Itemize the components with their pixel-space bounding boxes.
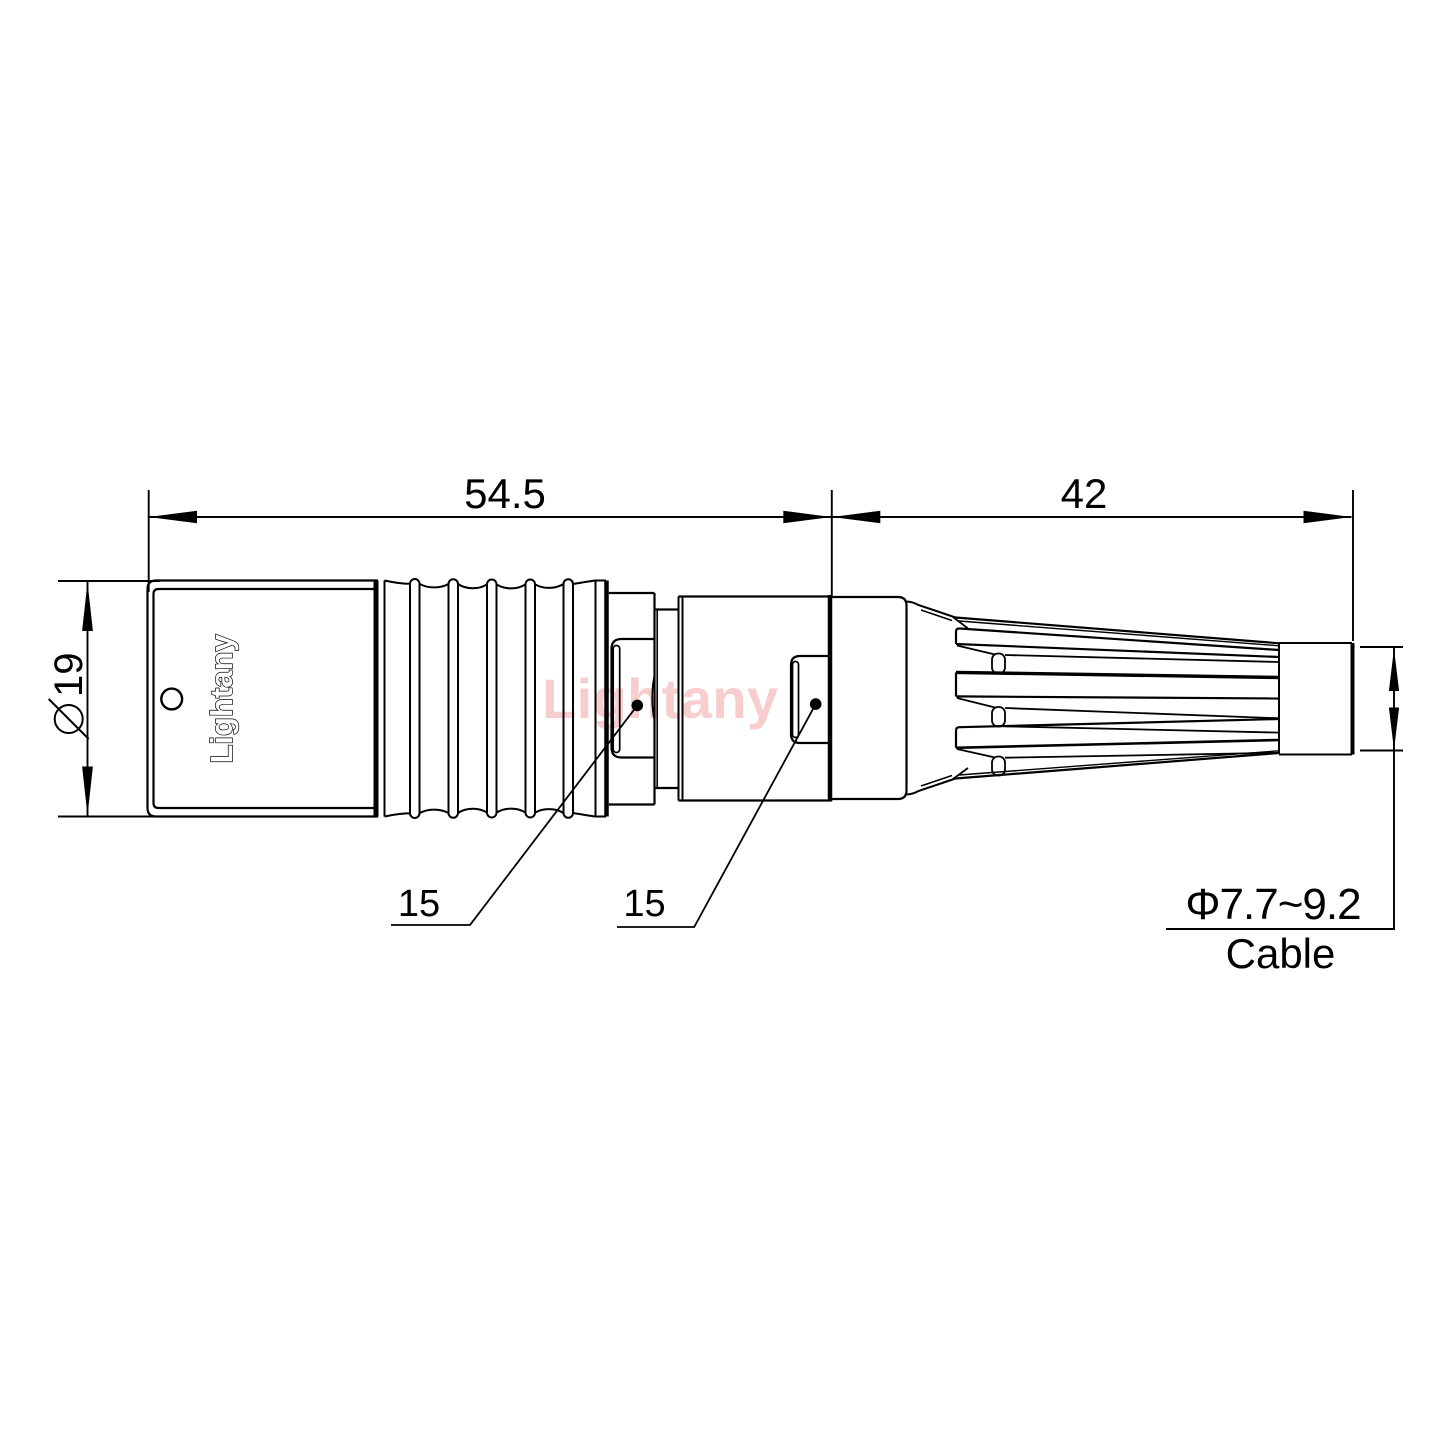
svg-text:54.5: 54.5 — [464, 470, 546, 517]
svg-text:Lightany: Lightany — [542, 667, 779, 730]
svg-text:19: 19 — [47, 653, 91, 698]
svg-text:Cable: Cable — [1226, 930, 1336, 977]
svg-text:Lightany: Lightany — [204, 634, 239, 764]
svg-text:42: 42 — [1061, 470, 1108, 517]
svg-text:15: 15 — [623, 883, 665, 925]
svg-text:Φ7.7~9.2: Φ7.7~9.2 — [1185, 880, 1360, 929]
svg-text:15: 15 — [398, 883, 440, 925]
